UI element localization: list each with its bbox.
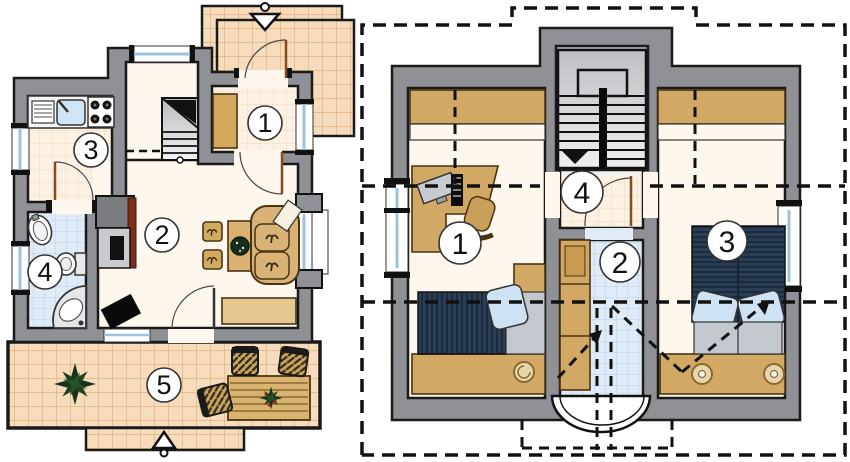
room-label-ground-2: 2 [145,218,179,252]
room-label-ground-1: 1 [248,106,282,140]
room-label-ground-4: 4 [28,255,62,289]
room-label-ground-5: 5 [147,368,181,402]
bathroom-window [11,241,30,295]
bedroom1-door-gap [545,172,560,218]
room-number: 4 [574,177,591,210]
kitchen-window [11,123,30,175]
room-label-upper-3: 3 [707,221,747,261]
bathroom-door-gap [585,228,633,240]
hall-wardrobe [213,94,237,148]
staircase-icon [162,98,198,163]
coffee-table [228,221,252,271]
ground-floor-plan: 1 2 3 4 5 [8,3,354,457]
room-number: 4 [37,257,52,287]
terrace-table [228,376,310,420]
room-number: 5 [156,370,171,400]
kitchen-counter [28,96,114,128]
stove [88,97,114,127]
hall-window [295,99,314,155]
room-number: 3 [719,226,736,259]
room-label-upper-2: 2 [600,242,640,282]
room-number: 1 [257,108,272,138]
bathroom-upper-cabinets [560,240,590,390]
room-number: 2 [154,220,169,250]
wardrobe-3 [658,90,785,124]
living-room-window [296,194,328,288]
sofa [251,200,302,284]
fireplace [96,196,136,268]
upper-floor-plan: 1 2 3 4 [362,8,845,455]
room-label-ground-3: 3 [74,133,108,167]
room-number: 1 [452,228,469,261]
room-label-upper-1: 1 [439,222,481,264]
bedside-lamp [514,362,534,382]
bedroom1-window [384,178,410,278]
room-label-upper-4: 4 [561,171,603,213]
pouf-2 [203,250,222,269]
wardrobe-1 [410,90,545,124]
floor-plan-drawing: 1 2 3 4 5 [0,0,850,462]
sideboard [222,298,296,324]
room-number: 2 [612,247,629,280]
terrace-glazing [104,329,150,342]
bedroom3-door-gap [643,172,658,218]
bay-window [552,396,650,432]
room-number: 3 [83,135,98,165]
stair-hall-window [129,45,195,63]
bed-single [412,283,545,394]
floor-plan-sheet: 1 2 3 4 5 [0,0,850,462]
pouf-1 [203,222,222,241]
